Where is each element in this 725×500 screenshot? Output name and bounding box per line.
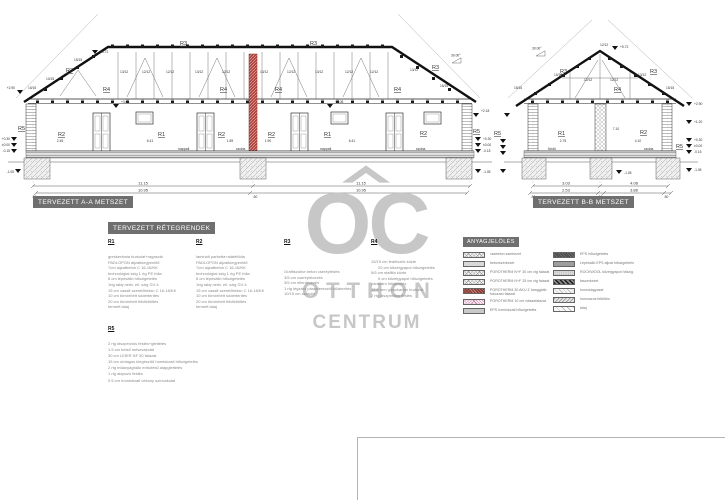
dim-value: 4.08 xyxy=(630,181,639,186)
truss-b xyxy=(562,54,638,99)
layers-legend-title: TERVEZETT RÉTEGRENDEK xyxy=(108,222,215,234)
elevation-value: +2.18 xyxy=(481,109,490,113)
pitch-mark: 15/15 xyxy=(440,84,448,88)
room-dim: 1.90 xyxy=(265,139,272,143)
elevation-value: -0.15 xyxy=(2,149,10,153)
section-b-drawing: 3.03 4.08 2.53 3.88 .50 .50 .50 +5.72 +2… xyxy=(494,20,703,199)
foundation xyxy=(656,158,680,179)
material-label: homokágyazat xyxy=(580,288,603,292)
foundation xyxy=(522,158,546,179)
elevation-value: +2.90 xyxy=(7,86,16,90)
pitch-mark: 12/12 xyxy=(610,78,618,82)
room-dim: 4.10 xyxy=(635,139,642,143)
elevation-value: +3.08 xyxy=(121,100,130,104)
pitch-mark: 13/12 xyxy=(638,73,646,77)
pitch-mark: 15/15 xyxy=(74,58,82,62)
material-label: talaj xyxy=(580,306,587,310)
dim-value: 11.15 xyxy=(356,181,366,186)
room-dim: 2.45 xyxy=(57,139,64,143)
watermark-centrum: CENTRUM xyxy=(283,312,449,334)
pitch-mark: 13/12 xyxy=(120,70,128,74)
drawing-sheet: 11.15 11.15 10.95 10.95 .50 .50 +5.72 +2… xyxy=(0,0,725,500)
layer-line: 2 rtg diszperziós festés xyxy=(371,293,457,299)
elevation-value: ±0.00 xyxy=(694,144,702,148)
label-r3: R3 xyxy=(432,65,439,71)
label-r4: R4 xyxy=(614,87,621,93)
dim-value: 11.15 xyxy=(138,181,148,186)
material-label: vasbeton szerkezet xyxy=(490,252,521,256)
label-r4: R4 xyxy=(275,87,282,93)
label-r2: R2 xyxy=(58,132,65,138)
room-dim: 6.41 xyxy=(147,139,154,143)
layer-id: R4 xyxy=(371,239,457,245)
room-name: fürdő xyxy=(548,147,556,151)
material-label: POROTHERM N+F 25 cm vtg falazat xyxy=(490,279,549,283)
wall-left xyxy=(528,104,538,151)
material-row: POROTHERM N+F 30 cm vtg falazat xyxy=(463,270,555,276)
material-swatch-faszerkezet xyxy=(553,279,575,285)
elevation-value: +0.30 xyxy=(694,138,703,142)
material-row: homokágyazat xyxy=(553,288,645,294)
elevation-value: -0.15 xyxy=(483,149,491,153)
dim-value: .50 xyxy=(664,195,669,199)
dim-value: 10.95 xyxy=(356,188,367,193)
room-dim: 2.75 xyxy=(560,139,567,143)
pitch-mark: 12/12 xyxy=(345,70,353,74)
label-r5: R5 xyxy=(494,131,501,137)
material-swatch-humusz xyxy=(553,297,575,303)
room-annots-a: 2.45 6.41 1.89 1.90 6.41 nappali szoba n… xyxy=(57,139,426,151)
title-block-frame xyxy=(357,437,725,500)
door xyxy=(93,113,110,152)
materials-legend-title: ANYAGJELÖLÉS xyxy=(463,237,519,247)
elevation-value: +3.08 xyxy=(335,100,344,104)
materials-column-right: EPS hőszigetelés Lépésálló EPS aljzat hő… xyxy=(553,252,645,312)
material-label: POROTHERM 10 cm válaszfalazat xyxy=(490,299,546,303)
material-label: ROCKWOOL kőzetgyapot hőszig. xyxy=(580,270,634,274)
layer-id: R5 xyxy=(108,326,228,332)
material-label: EPS homlokzati hőszigetelés xyxy=(490,308,536,312)
pitch-mark: 12/12 xyxy=(370,70,378,74)
section-b-title: TERVEZETT B-B METSZET xyxy=(533,196,634,208)
material-row: vasbeton szerkezet xyxy=(463,252,555,258)
elevation-value: -0.15 xyxy=(694,150,702,154)
pitch-mark: 15/15 xyxy=(514,86,522,90)
foundation xyxy=(590,158,612,179)
material-row: talaj xyxy=(553,306,645,312)
room-name: nappali xyxy=(320,147,332,151)
material-swatch-talaj xyxy=(553,306,575,312)
material-swatch-lepesallo-eps xyxy=(553,261,575,267)
label-r5: R5 xyxy=(473,129,480,135)
layer-line: termett talaj xyxy=(196,304,282,310)
layer-block-r5: R5 2 rtg diszperziós festés+glettelés 1.… xyxy=(108,326,228,384)
material-row: POROTHERM 10 cm válaszfalazat xyxy=(463,299,555,305)
room-name: szoba xyxy=(644,147,653,151)
pitch-mark: 13/12 xyxy=(260,70,268,74)
material-row: betonszerkezet xyxy=(463,261,555,267)
window xyxy=(331,112,348,124)
layer-id: R1 xyxy=(108,239,194,245)
material-label: POROTHERM N+F 30 cm vtg falazat xyxy=(490,270,549,274)
elevation-value: +0.30 xyxy=(483,137,492,141)
room-dim: 6.41 xyxy=(349,139,356,143)
elevation-value: +2.90 xyxy=(694,102,703,106)
material-label: betonszerkezet xyxy=(490,261,514,265)
material-row: Lépésálló EPS aljzat hőszigetelés xyxy=(553,261,645,267)
material-swatch-eps xyxy=(553,252,575,258)
material-row: humuszos feltöltés xyxy=(553,297,645,303)
layer-id: R2 xyxy=(196,239,282,245)
elevation-value: +1.20 xyxy=(694,120,703,124)
label-r3: R3 xyxy=(66,68,73,74)
label-r2: R2 xyxy=(640,130,647,136)
window xyxy=(424,112,441,124)
label-r1: R1 xyxy=(558,131,565,137)
room-name: nappali xyxy=(178,147,190,151)
pitch-mark: 10/15 xyxy=(554,73,562,77)
label-r4: R4 xyxy=(394,87,401,93)
elevation-value: -1.05 xyxy=(6,170,14,174)
label-r5: R5 xyxy=(676,144,683,150)
material-row: POROTHERM N+F 25 cm vtg falazat xyxy=(463,279,555,285)
material-swatch-beton xyxy=(463,261,485,267)
pitch-mark: 12/12 xyxy=(600,43,608,47)
room-name: szoba xyxy=(236,147,245,151)
pitch-mark: 10/15 xyxy=(46,77,54,81)
floor-slab xyxy=(524,151,676,158)
acoustic-party-wall xyxy=(249,54,257,158)
layer-line: 10/15 cm szarufa xyxy=(284,291,376,297)
pitch-mark: 13/12 xyxy=(315,70,323,74)
elevation-value: ±0.00 xyxy=(2,143,10,147)
material-swatch-porotherm30 xyxy=(463,270,485,276)
layer-line: termett talaj xyxy=(108,304,194,310)
room-name: szoba xyxy=(416,147,425,151)
elevation-value: +0.30 xyxy=(2,137,11,141)
material-label: humuszos feltöltés xyxy=(580,297,610,301)
layer-block-r3: R3 Grafitszürke beton cserépfedés 3/5 cm… xyxy=(284,239,370,297)
pitch-mark: 12/12 xyxy=(287,70,295,74)
layer-block-r1: R1 greskerámia burkolat+ragasztó PADLOPO… xyxy=(108,239,194,310)
label-r4: R4 xyxy=(103,87,110,93)
window xyxy=(136,112,153,124)
material-swatch-rockwool xyxy=(553,270,575,276)
foundation xyxy=(446,158,472,179)
pitch-mark: 12/12 xyxy=(142,70,150,74)
material-row: EPS homlokzati hőszigetelés xyxy=(463,308,555,314)
floor-slab xyxy=(26,151,474,158)
elevation-value: -1.05 xyxy=(624,171,632,175)
layer-block-r2: R2 laminált parketta+alátétfólia PADLOPO… xyxy=(196,239,282,310)
material-label: faszerkezet xyxy=(580,279,598,283)
wall-right xyxy=(662,104,672,151)
roof-pitch-symbol xyxy=(452,58,461,63)
foundation xyxy=(24,158,50,179)
foundation xyxy=(240,158,266,179)
label-r2: R2 xyxy=(268,132,275,138)
material-row: EPS hőszigetelés xyxy=(553,252,645,258)
room-dim: 7.10 xyxy=(613,127,620,131)
label-r3: R3 xyxy=(310,41,317,47)
pitch-mark: 12/12 xyxy=(584,78,592,82)
elevation-value: -1.05 xyxy=(483,170,491,174)
elevation-value: +5.72 xyxy=(620,45,629,49)
roof-angle: 30.00° xyxy=(532,47,542,51)
pitch-mark: 15/15 xyxy=(28,86,36,90)
wall-left xyxy=(26,104,36,151)
section-a-drawing: 11.15 11.15 10.95 10.95 .50 .50 +5.72 +2… xyxy=(2,14,492,199)
material-swatch-eps-homlokzat xyxy=(463,308,485,314)
elevation-value: -1.05 xyxy=(694,168,702,172)
layer-block-r4: R4 15/15 cm fedélszék közte 20 cm kőzetg… xyxy=(371,239,457,298)
elevation-value: ±0.00 xyxy=(483,143,491,147)
elevation-value: +5.72 xyxy=(100,50,109,54)
pitch-mark: 15/15 xyxy=(666,86,674,90)
layer-line: 0.5 cm homlokzati vékony színvakolat xyxy=(108,378,228,384)
label-r1: R1 xyxy=(324,132,331,138)
material-label: Lépésálló EPS aljzat hőszigetelés xyxy=(580,261,634,265)
door xyxy=(197,113,214,152)
dim-value: .50 xyxy=(253,195,258,199)
wall-right xyxy=(462,104,472,151)
pitch-mark: 12/12 xyxy=(166,70,174,74)
dim-value: 3.03 xyxy=(562,181,571,186)
material-row: POROTHERM 30 AKU Z hanggátló fokozatú fa… xyxy=(463,288,555,296)
slope-purlins xyxy=(44,55,451,91)
dim-value: 2.53 xyxy=(562,188,571,193)
material-swatch-vasbeton xyxy=(463,252,485,258)
slope-dim-lines xyxy=(16,14,480,98)
material-swatch-porotherm25 xyxy=(463,279,485,285)
label-r3: R3 xyxy=(180,41,187,47)
door xyxy=(291,113,308,152)
dim-value: 3.88 xyxy=(630,188,639,193)
material-swatch-porotherm-aku xyxy=(463,288,485,294)
materials-column-left: vasbeton szerkezet betonszerkezet POROTH… xyxy=(463,252,555,314)
roof-angle: 30.00° xyxy=(451,54,461,58)
pitch-mark: 13/12 xyxy=(410,68,418,72)
label-r2: R2 xyxy=(420,131,427,137)
material-swatch-homok xyxy=(553,288,575,294)
room-dim: 1.89 xyxy=(227,139,234,143)
label-r5: R5 xyxy=(18,126,25,132)
material-row: faszerkezet xyxy=(553,279,645,285)
wall-center xyxy=(595,104,606,151)
roof-pitch-symbol xyxy=(536,51,545,56)
material-label: EPS hőszigetelés xyxy=(580,252,608,256)
pitch-marks-a: 13/12 12/12 12/12 13/12 12/12 13/12 12/1… xyxy=(28,58,448,90)
material-label: POROTHERM 30 AKU Z hanggátló fokozatú fa… xyxy=(490,288,555,296)
material-row: ROCKWOOL kőzetgyapot hőszig. xyxy=(553,270,645,276)
dim-value: 10.95 xyxy=(138,188,149,193)
pitch-mark: 13/12 xyxy=(195,70,203,74)
label-r1: R1 xyxy=(158,132,165,138)
section-a-title: TERVEZETT A-A METSZET xyxy=(33,196,133,208)
label-r2: R2 xyxy=(218,132,225,138)
pitch-mark: 12/12 xyxy=(222,70,230,74)
door xyxy=(386,113,403,152)
label-r4: R4 xyxy=(220,87,227,93)
material-swatch-valaszfal xyxy=(463,299,485,305)
layer-id: R3 xyxy=(284,239,370,245)
label-r3: R3 xyxy=(650,69,657,75)
